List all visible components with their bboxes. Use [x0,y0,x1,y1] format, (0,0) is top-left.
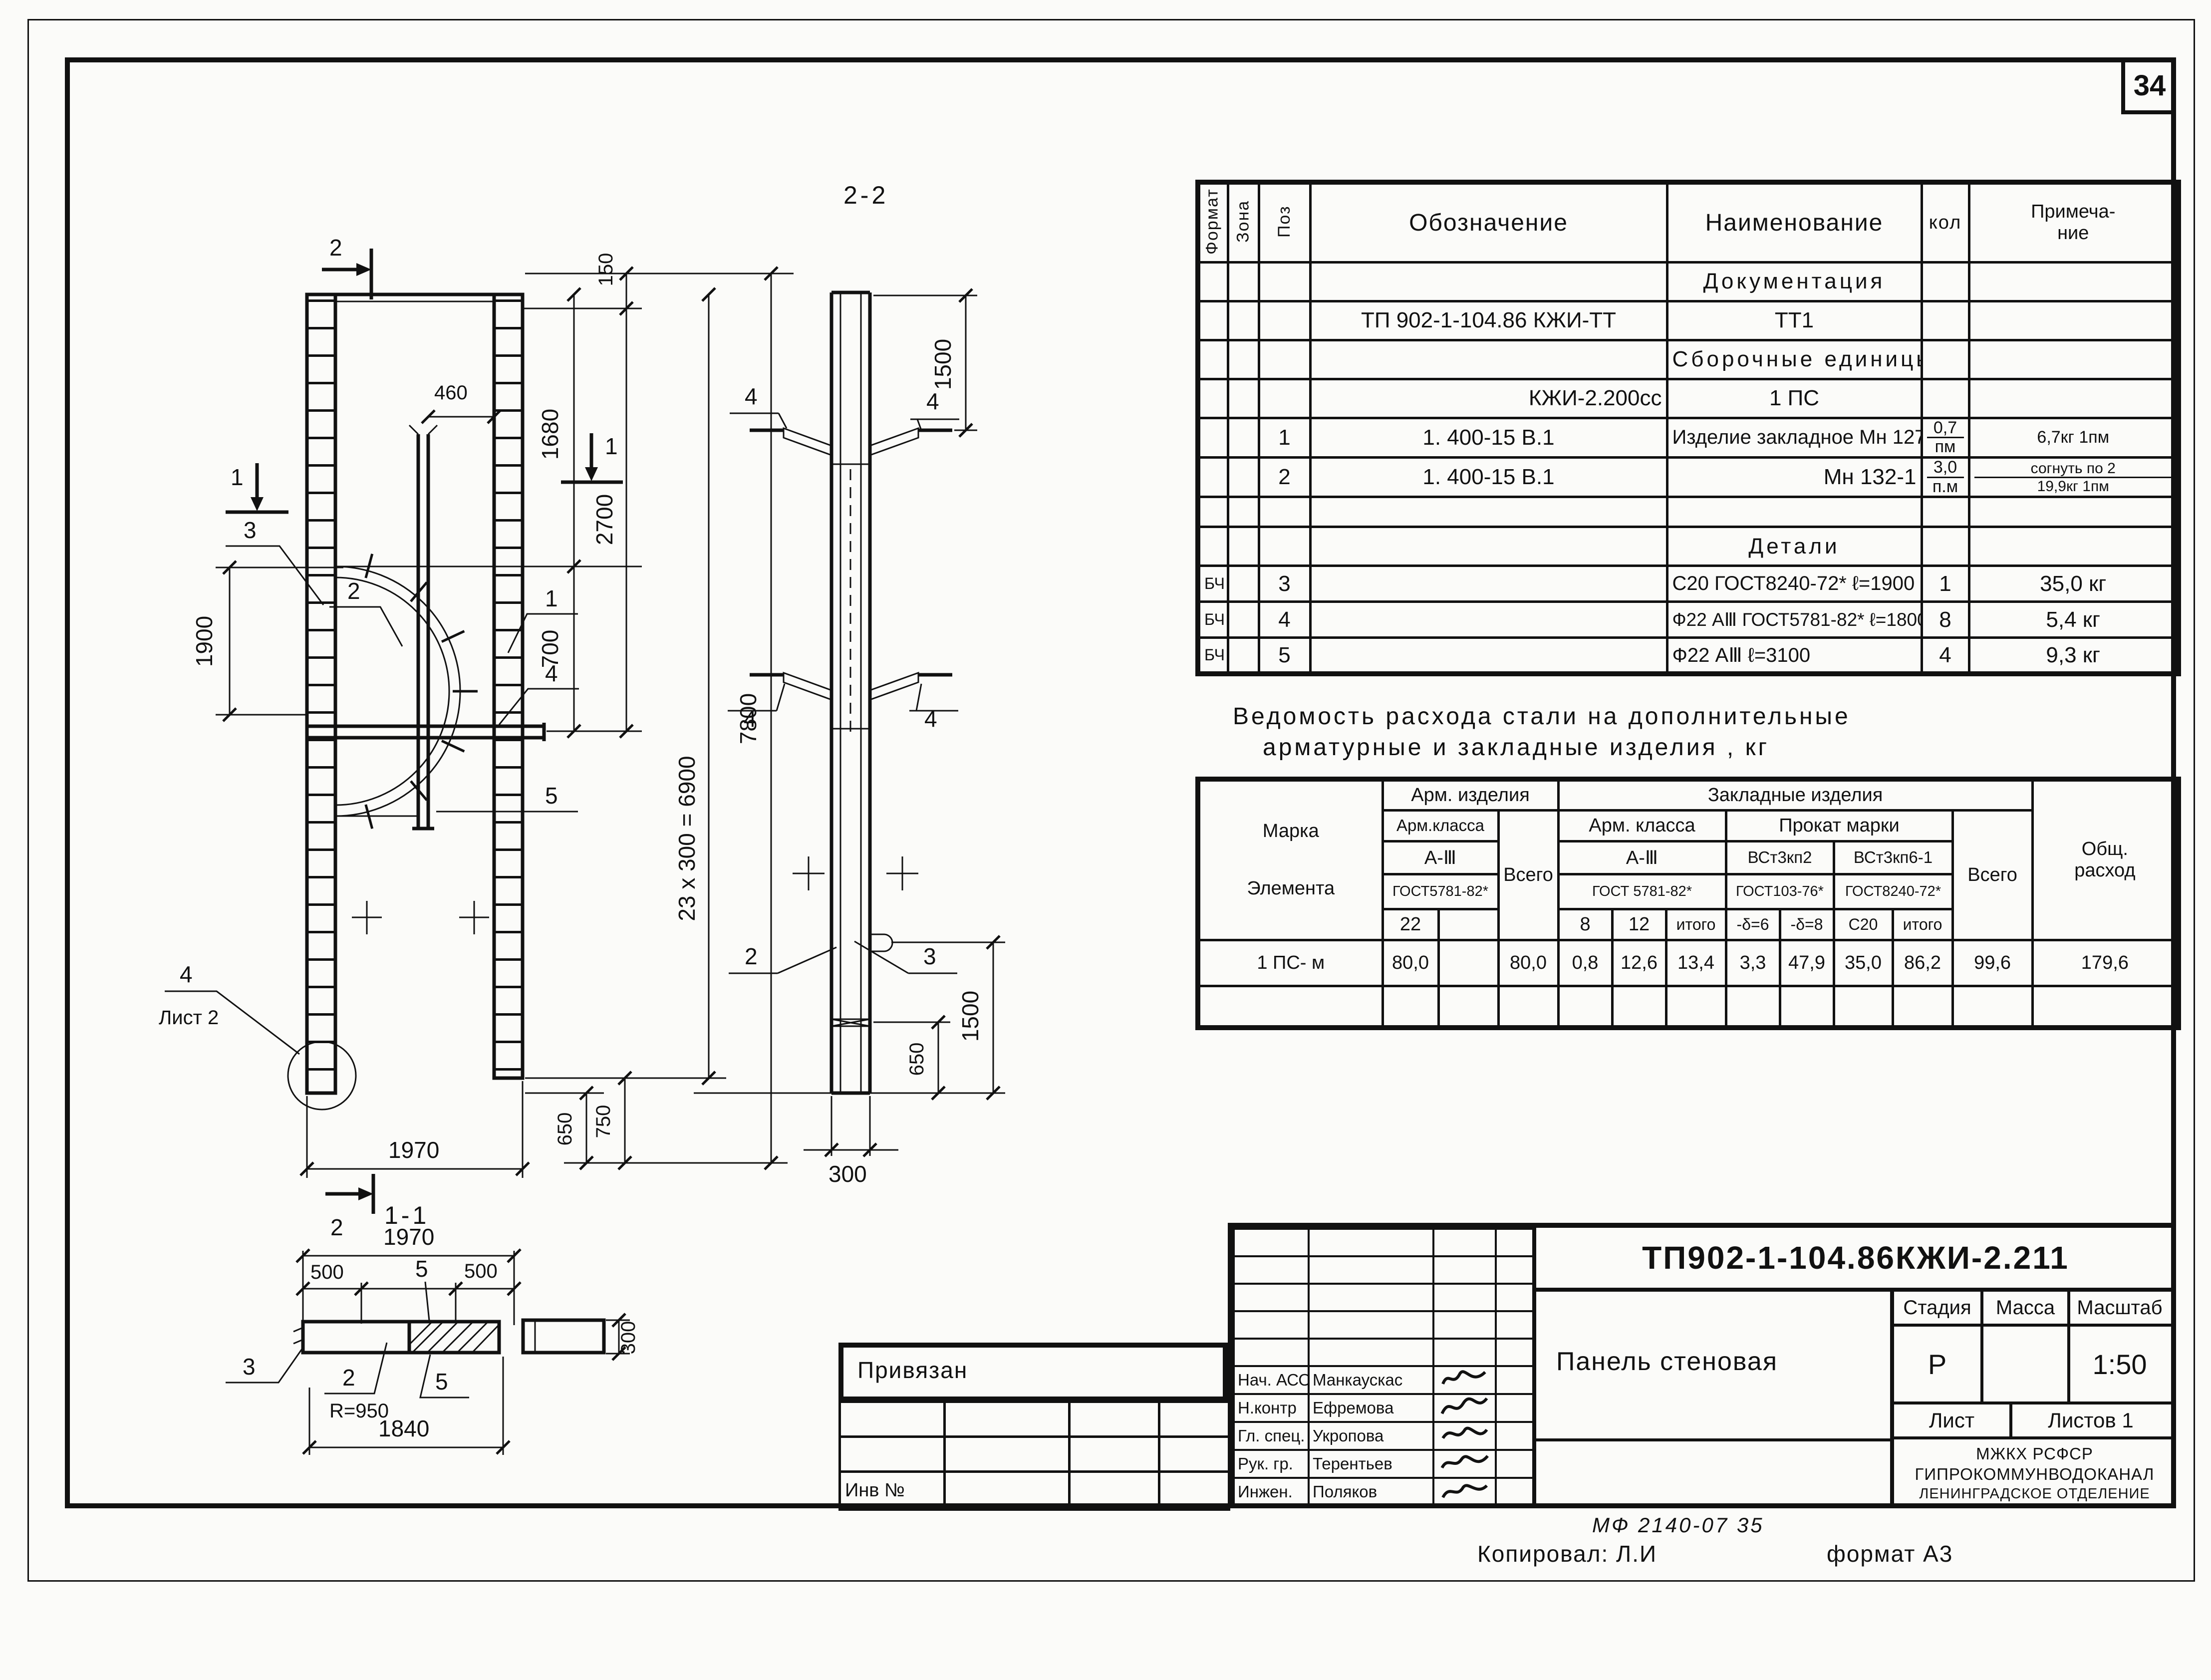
item3-note: 35,0 кг [1969,566,2179,602]
title-block-signatures: Нач. АСОМанкаускас Н.контрЕфремова Гл. с… [1233,1228,1532,1503]
signature [1433,1422,1496,1450]
dim-1970-section: 1970 [383,1224,434,1250]
copied-by: Копировал: Л.И [1477,1540,1657,1567]
item3-format: БЧ [1198,566,1228,602]
steel-row-vb6: 3,3 [1726,940,1780,986]
callout-5-bottom: 5 [435,1369,448,1395]
signature [1433,1366,1496,1394]
section-documentation: Документация [1667,262,1922,301]
callout-sheet2: Лист 2 [159,1007,219,1029]
steel-gost2: ГОСТ 5781-82* [1558,874,1726,909]
steel-marka-b: Элемента [1202,877,1380,900]
dim-1500-bottom: 1500 [957,991,983,1042]
item1-note: 6,7кг 1пм [1969,418,2179,457]
item2-name: Мн 132-1 [1667,457,1922,497]
section-mark-1-right: 1 [605,433,618,459]
signature [1433,1478,1496,1506]
section-1-1-view: 1-1 1970 500 500 5 3 2 [226,1201,639,1455]
drawing-title: Панель стеновая [1532,1292,1890,1438]
dim-700: 700 [537,630,563,668]
col-poz: Поз [1259,182,1310,262]
dim-1970: 1970 [388,1137,439,1163]
view-title-2-2: 2-2 [843,181,888,209]
signature [1433,1450,1496,1478]
steel-a3-2: А-Ⅲ [1558,841,1726,874]
item5-qty: 4 [1922,638,1969,674]
item1-name: Изделие закладное Мн 127-5 [1667,418,1922,457]
assembly-name: 1 ПС [1667,379,1922,418]
stamp-right-column: Стадия Масса Масштаб Р 1:50 Лист Листов … [1890,1292,2175,1503]
privyazan-box: Привязан [838,1343,1228,1401]
signer-role: Н.контр [1234,1394,1309,1422]
callout-4-sheet: 4 [180,961,193,987]
item4-poz: 4 [1259,602,1310,638]
col-prim-line1: Примеча- [1974,201,2173,223]
steel-row-vitogo1: 13,4 [1666,940,1726,986]
signer-name: Поляков [1309,1478,1433,1506]
steel-gost3: ГОСТ103-76* [1726,874,1834,909]
steel-d12: 12 [1612,909,1666,940]
item1-designation: 1. 400-15 В.1 [1310,418,1667,457]
steel-gost4: ГОСТ8240-72* [1834,874,1952,909]
steel-d8: 8 [1558,909,1612,940]
dim-650: 650 [554,1113,576,1146]
callout-3-mid: 3 [923,943,936,969]
item1-qty-a: 0,7 [1927,419,1964,439]
item2-qty-b: п.м [1927,478,1964,496]
steel-row-vitogo2: 86,2 [1893,940,1952,986]
steel-row-v8: 0,8 [1558,940,1612,986]
item4-note: 5,4 кг [1969,602,2179,638]
section-mark-2-top: 2 [329,235,342,261]
callout-3: 3 [244,517,257,543]
steel-c20: С20 [1834,909,1893,940]
dim-300-mid: 300 [829,1161,867,1187]
section-2-2-view: 2-2 4 4 4 [694,181,1005,1187]
callout-4-ul: 4 [745,383,758,409]
steel-consumption-table: МаркаЭлемента Арм. изделия Закладные изд… [1195,777,2181,1030]
item5-poz: 5 [1259,638,1310,674]
steel-d22: 22 [1382,909,1438,940]
detail-circle [288,1042,356,1110]
sheet-format: формат А3 [1827,1540,1953,1567]
item5-name: Ф22 АⅢ ℓ=3100 [1667,638,1922,674]
dim-1680: 1680 [537,409,563,460]
scale-value: 1:50 [2070,1327,2169,1401]
callout-1: 1 [545,585,558,611]
callout-4-ur: 4 [926,388,939,414]
stage-value: Р [1894,1327,1983,1401]
signer-role: Нач. АСО [1234,1366,1309,1394]
document-number: ТП902-1-104.86КЖИ-2.211 [1532,1228,2175,1292]
col-format: Формат [1198,182,1228,262]
callout-5: 5 [545,783,558,809]
col-oboznachenie: Обозначение [1310,182,1667,262]
item2-note-a: согнуть по 2 [1974,460,2173,478]
section-mark-1-left: 1 [231,464,244,490]
callout-4-lr: 4 [924,706,937,732]
dim-6900: 23 x 300 = 6900 [674,756,700,921]
item2-qty-a: 3,0 [1927,459,1964,478]
sheets-label: Листов 1 [2012,1404,2169,1436]
dim-750: 750 [592,1105,614,1138]
inv-label: Инв № [840,1472,945,1510]
steel-row-marka: 1 ПС- м [1198,940,1382,986]
steel-group-zakl: Закладные изделия [1558,779,2032,810]
item4-format: БЧ [1198,602,1228,638]
signer-role: Инжен. [1234,1478,1309,1506]
steel-b8: -δ=8 [1780,909,1834,940]
callout-2: 2 [347,578,360,604]
microfilm-code: МФ 2140-07 35 [1592,1513,1764,1537]
steel-vst3kp2: ВСт3кп2 [1726,841,1834,874]
steel-vst3kp61: ВСт3кп6-1 [1834,841,1952,874]
privyazan-label: Привязан [857,1357,968,1383]
dim-2700: 2700 [591,494,617,545]
dim-1900: 1900 [191,616,217,667]
signer-role: Рук. гр. [1234,1450,1309,1478]
steel-row-vc20: 35,0 [1834,940,1893,986]
stage-label: Стадия [1894,1292,1983,1324]
signer-name: Ефремова [1309,1394,1433,1422]
specification-table: Формат Зона Поз Обозначение Наименование… [1195,180,2176,676]
item3-name: С20 ГОСТ8240-72* ℓ=1900 [1667,566,1922,602]
steel-b6: -δ=6 [1726,909,1780,940]
col-naimenovanie: Наименование [1667,182,1922,262]
signature [1433,1394,1496,1422]
steel-obsh-a: Общ. [2036,839,2175,860]
steel-row-v12: 12,6 [1612,940,1666,986]
dim-500-right: 500 [464,1260,498,1282]
item5-note: 9,3 кг [1969,638,2179,674]
org-line2: ГИПРОКОММУНВОДОКАНАЛ [1894,1464,2175,1484]
doc-designation: ТП 902-1-104.86 КЖИ-ТТ [1310,301,1667,340]
item3-poz: 3 [1259,566,1310,602]
item5-format: БЧ [1198,638,1228,674]
col-kol: кол [1922,182,1969,262]
section-mark-2-bottom: 2 [330,1214,343,1240]
signer-name: Терентьев [1309,1450,1433,1478]
signer-name: Манкаускас [1309,1366,1433,1394]
steel-prokat: Прокат марки [1726,810,1952,841]
steel-gost1: ГОСТ5781-82* [1382,874,1498,909]
left-view-callouts: 3 2 1 4 5 4 Лист 2 [159,517,579,1054]
steel-a3-1: А-Ⅲ [1382,841,1498,874]
dim-650-mid: 650 [906,1043,928,1076]
steel-vsego2-h: Всего [1952,810,2032,940]
steel-row-vblank [1438,940,1498,986]
dim-1840: 1840 [378,1415,429,1441]
signer-role: Гл. спец. [1234,1422,1309,1450]
dim-1500-top: 1500 [930,339,956,390]
scale-label: Масштаб [2070,1292,2169,1324]
org-line3: ЛЕНИНГРАДСКОЕ ОТДЕЛЕНИЕ [1894,1485,2175,1503]
organization: МЖКХ РСФСР ГИПРОКОММУНВОДОКАНАЛ ЛЕНИНГРА… [1894,1439,2175,1503]
callout-3-section: 3 [243,1354,256,1380]
item2-designation: 1. 400-15 В.1 [1310,457,1667,497]
item4-qty: 8 [1922,602,1969,638]
steel-row-obsh: 179,6 [2032,940,2179,986]
assembly-designation: КЖИ-2.200сс [1310,379,1667,418]
steel-marka-a: Марка [1202,820,1380,843]
page-number-box: 34 [2121,60,2174,114]
steel-vsego1: Всего [1498,810,1558,940]
callout-2-section: 2 [342,1365,355,1391]
item1-qty-b: пм [1927,438,1964,456]
steel-arm-klassa2: Арм. класса [1558,810,1726,841]
callout-4-ll: 4 [744,706,757,732]
steel-table-title-2: арматурные и закладные изделия , кг [1263,734,1769,761]
org-line1: МЖКХ РСФСР [1894,1443,2175,1464]
section-assembly-units: Сборочные единицы [1667,340,1922,379]
item2-note-b: 19,9кг 1пм [1974,478,2173,495]
dim-300-section: 300 [617,1321,639,1355]
dim-460: 460 [434,382,468,404]
panel-drawing-views: 2 2 1 1 3 2 1 4 5 4 [65,57,1193,1508]
mass-label: Масса [1983,1292,2070,1324]
opening-arc-ticks [366,554,478,829]
callout-5-top: 5 [415,1256,428,1282]
dim-500-left: 500 [310,1261,344,1283]
callout-2-mid: 2 [745,943,758,969]
steel-group-arm: Арм. изделия [1382,779,1558,810]
steel-itogo2: итого [1893,909,1952,940]
empty-cell [1532,1438,1894,1506]
mass-value [1983,1327,2070,1401]
steel-row-vb8: 47,9 [1780,940,1834,986]
inventory-grid: Инв № [838,1400,1228,1508]
steel-itogo1: итого [1666,909,1726,940]
item3-qty: 1 [1922,566,1969,602]
doc-name: ТТ1 [1667,301,1922,340]
item2-poz: 2 [1259,457,1310,497]
sheet-label: Лист [1894,1404,2012,1436]
section-details: Детали [1667,527,1922,566]
steel-row-vsego2: 99,6 [1952,940,2032,986]
signer-name: Укропова [1309,1422,1433,1450]
steel-row-v22: 80,0 [1382,940,1438,986]
steel-arm-klassa1: Арм.класса [1382,810,1498,841]
drawing-sheet: 34 [0,0,2211,1680]
col-prim-line2: ние [1974,223,2173,244]
steel-table-title-1: Ведомость расхода стали на дополнительны… [1233,703,1851,730]
item4-name: Ф22 АⅢ ГОСТ5781-82* ℓ=1800 [1667,602,1922,638]
item1-poz: 1 [1259,418,1310,457]
title-block: Нач. АСОМанкаускас Н.контрЕфремова Гл. с… [1228,1223,2176,1508]
steel-obsh-b: расход [2036,860,2175,881]
dim-150: 150 [595,253,617,286]
page-number: 34 [2134,69,2166,102]
col-zona: Зона [1228,182,1259,262]
left-elevation-view [288,294,544,1110]
steel-row-vsego1: 80,0 [1498,940,1558,986]
